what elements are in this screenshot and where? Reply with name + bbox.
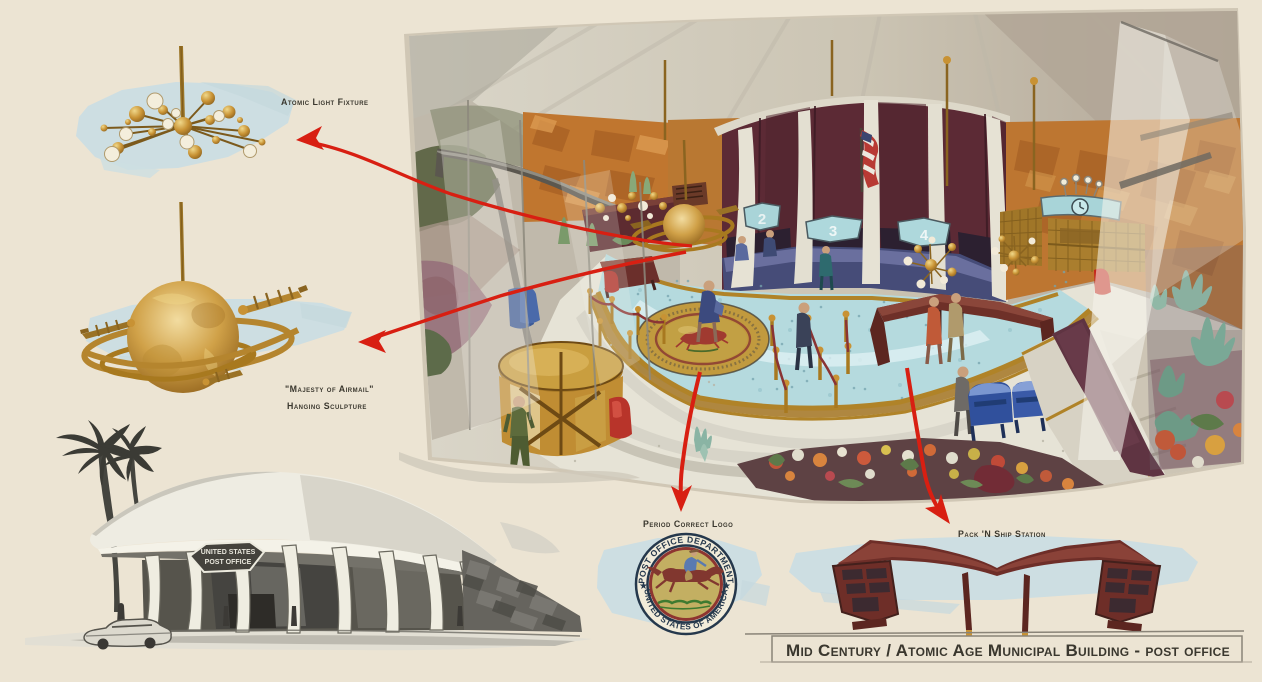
svg-text:Hanging Sculpture: Hanging Sculpture [287,401,367,411]
svg-text:2: 2 [758,211,766,228]
svg-text:3: 3 [829,223,837,240]
svg-text:4: 4 [920,227,929,244]
svg-text:Period Correct Logo: Period Correct Logo [643,519,733,529]
svg-text:Atomic Light Fixture: Atomic Light Fixture [281,97,369,107]
svg-text:★: ★ [722,581,731,592]
svg-text:Mid Century / Atomic Age Munic: Mid Century / Atomic Age Municipal Build… [786,641,1230,660]
svg-text:UNITED STATES: UNITED STATES [201,549,256,556]
svg-text:POST OFFICE: POST OFFICE [205,559,252,566]
svg-text:★: ★ [639,581,648,592]
svg-text:"Majesty of Airmail": "Majesty of Airmail" [285,384,374,394]
svg-text:Pack 'N Ship Station: Pack 'N Ship Station [958,529,1046,539]
